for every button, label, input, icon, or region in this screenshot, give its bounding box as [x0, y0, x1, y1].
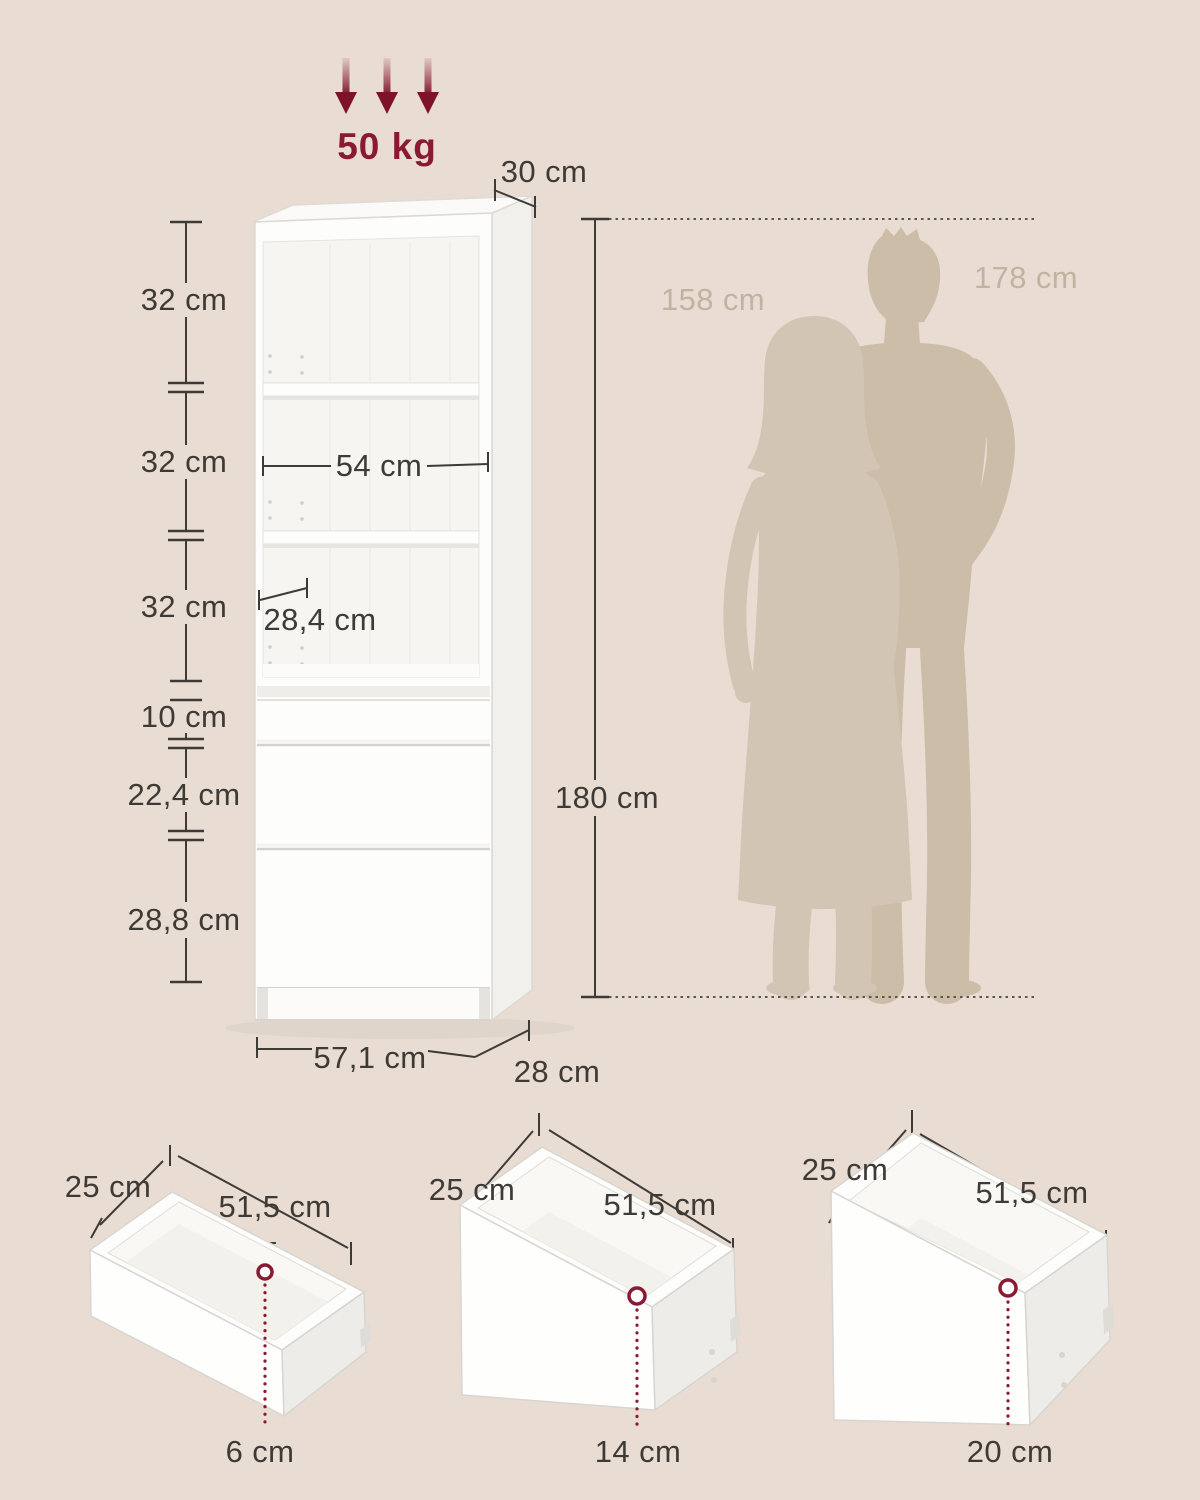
- woman-height-label: 158 cm: [661, 282, 765, 318]
- drawer3-width-label: 51,5 cm: [975, 1175, 1088, 1211]
- drawer1-depth-label: 25 cm: [65, 1169, 151, 1205]
- total-height-label: 180 cm: [555, 780, 659, 816]
- load-capacity-label: 50 kg: [337, 126, 437, 168]
- cabinet-width-label: 57,1 cm: [313, 1040, 426, 1076]
- shelf-height-label-3: 32 cm: [141, 589, 227, 625]
- drawer-front-height-label-3: 28,8 cm: [127, 902, 240, 938]
- drawer2-width-label: 51,5 cm: [603, 1187, 716, 1223]
- shelf-depth-label: 28,4 cm: [263, 602, 376, 638]
- drawer2-height-label: 14 cm: [595, 1434, 681, 1470]
- shelf-height-label-1: 32 cm: [141, 282, 227, 318]
- drawer-front-height-label-1: 10 cm: [141, 699, 227, 735]
- drawer2-depth-label: 25 cm: [429, 1172, 515, 1208]
- man-height-label: 178 cm: [974, 260, 1078, 296]
- drawer-front-height-label-2: 22,4 cm: [127, 777, 240, 813]
- product-dimension-diagram: 50 kg 30 cm 32 cm 32 cm 32 cm 10 cm 22,4…: [0, 0, 1200, 1500]
- inner-width-label: 54 cm: [336, 448, 422, 484]
- drawer-illustration-1: [90, 1192, 371, 1416]
- drawer3-depth-label: 25 cm: [802, 1152, 888, 1188]
- diagram-artwork: [0, 0, 1200, 1500]
- drawer1-width-label: 51,5 cm: [218, 1189, 331, 1225]
- bottom-depth-label: 28 cm: [514, 1054, 600, 1090]
- drawer3-height-label: 20 cm: [967, 1434, 1053, 1470]
- shelf-height-label-2: 32 cm: [141, 444, 227, 480]
- top-depth-label: 30 cm: [501, 154, 587, 190]
- drawer1-height-label: 6 cm: [226, 1434, 295, 1470]
- load-arrows-icon: [335, 58, 439, 114]
